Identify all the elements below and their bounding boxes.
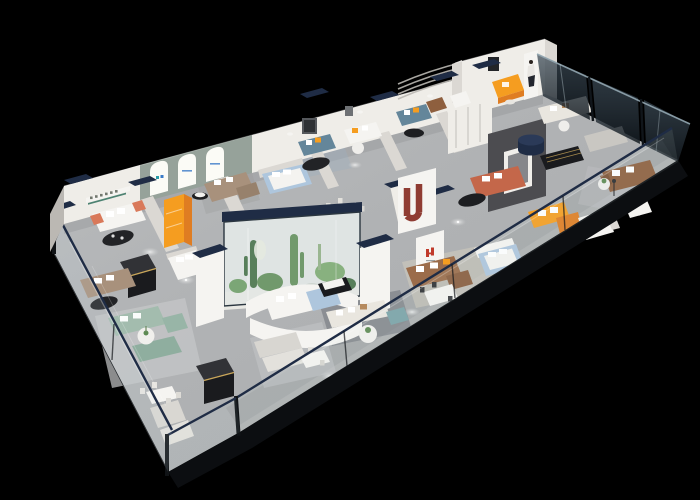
brown-pillow [360,304,367,310]
orange-wardrobe-side [184,194,192,246]
round-table [559,121,570,132]
orange-pillow [443,259,450,265]
orange-pillow [352,128,358,133]
orange-display-wardrobe [164,194,184,248]
showroom-render-canvas [0,0,700,500]
hostess-banner [524,50,538,100]
arch-caption-line [210,163,220,165]
arch-logo-icon [156,176,159,179]
wall-art-frame [345,106,353,116]
wall-tv-screen [304,120,315,132]
brand-caption-line [426,260,435,261]
navy-cylinder-table [518,135,544,156]
isometric-showroom-scene [0,0,700,500]
side-table [505,100,515,105]
arch-caption-line [182,170,192,172]
arch-logo-icon [161,175,164,178]
hostess-skirt [528,75,535,87]
black-round-table [404,129,424,138]
terrarium-left-pillar [196,249,224,327]
round-table [352,142,364,154]
hostess-head [529,60,533,64]
armchair-pillow [502,82,509,87]
